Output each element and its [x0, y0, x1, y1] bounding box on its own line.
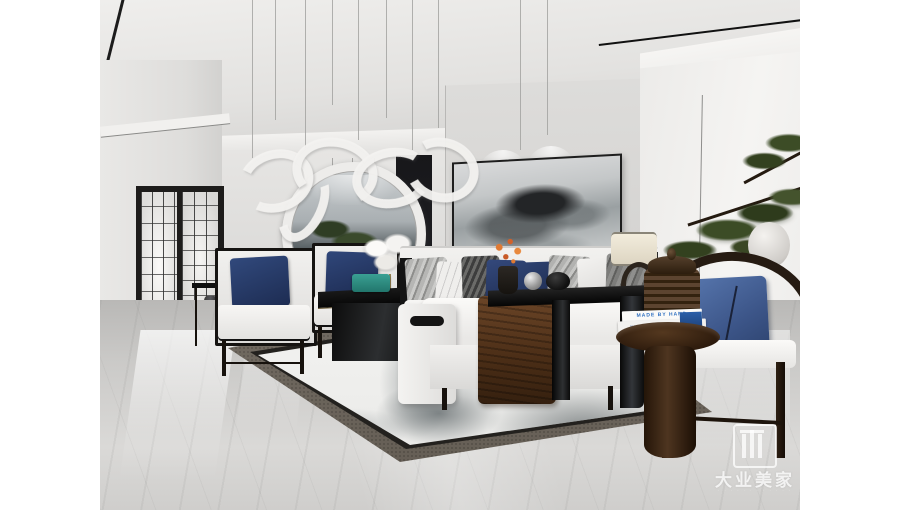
chandelier-wire: [386, 0, 387, 118]
logo-bar: [758, 434, 762, 458]
waterfall-table-leg: [552, 300, 570, 400]
canister-knob: [667, 248, 676, 260]
chandelier-wire: [547, 0, 548, 135]
watermark: 大业美家 · · · · · · · · · · · ·: [695, 420, 800, 504]
letterbox-right: [800, 0, 900, 510]
living-room-photo: MADE BY HAND NURSING HOME AND BACK 大业美家 …: [100, 0, 800, 510]
black-teapot-decor: [546, 272, 570, 290]
bench-handle-slot: [410, 316, 444, 326]
side-table-left-leg: [195, 288, 197, 346]
chandelier-wire: [305, 0, 306, 148]
logo-bar: [750, 430, 754, 458]
throw-blanket: [478, 296, 556, 404]
daye-gate-logo-icon: [733, 424, 777, 468]
bench-leg: [442, 388, 447, 410]
bench-leg: [608, 386, 613, 410]
chandelier-wire: [438, 0, 439, 128]
armchair-left-seat: [218, 305, 310, 339]
armchair-left-pillow: [230, 256, 291, 309]
logo-bar-horizontal: [740, 430, 764, 433]
teal-decor-box: [352, 274, 390, 292]
armchair-leg: [318, 326, 322, 358]
armchair-stretcher: [224, 362, 304, 364]
armchair-leg: [300, 340, 304, 374]
letterbox-left: [0, 0, 100, 510]
chandelier-wire: [252, 0, 253, 158]
chandelier-wire: [358, 0, 359, 140]
logo-bar: [742, 434, 746, 458]
chandelier-wire: [520, 0, 521, 150]
watermark-tagline: · · · · · · · · · · · ·: [695, 488, 800, 493]
armchair-leg: [222, 340, 226, 376]
chandelier-wire: [275, 0, 276, 120]
chandelier-wire: [332, 0, 333, 105]
chandelier-wire: [412, 0, 413, 150]
orange-flowers: [486, 234, 530, 272]
pillow-piping: [724, 286, 737, 345]
pine-foliage-top: [740, 128, 800, 188]
glass-sphere-decor: [524, 272, 542, 290]
side-table-pedestal: [644, 346, 696, 458]
screenshot-root: { "scene": { "type": "interior-3d-render…: [0, 0, 900, 510]
